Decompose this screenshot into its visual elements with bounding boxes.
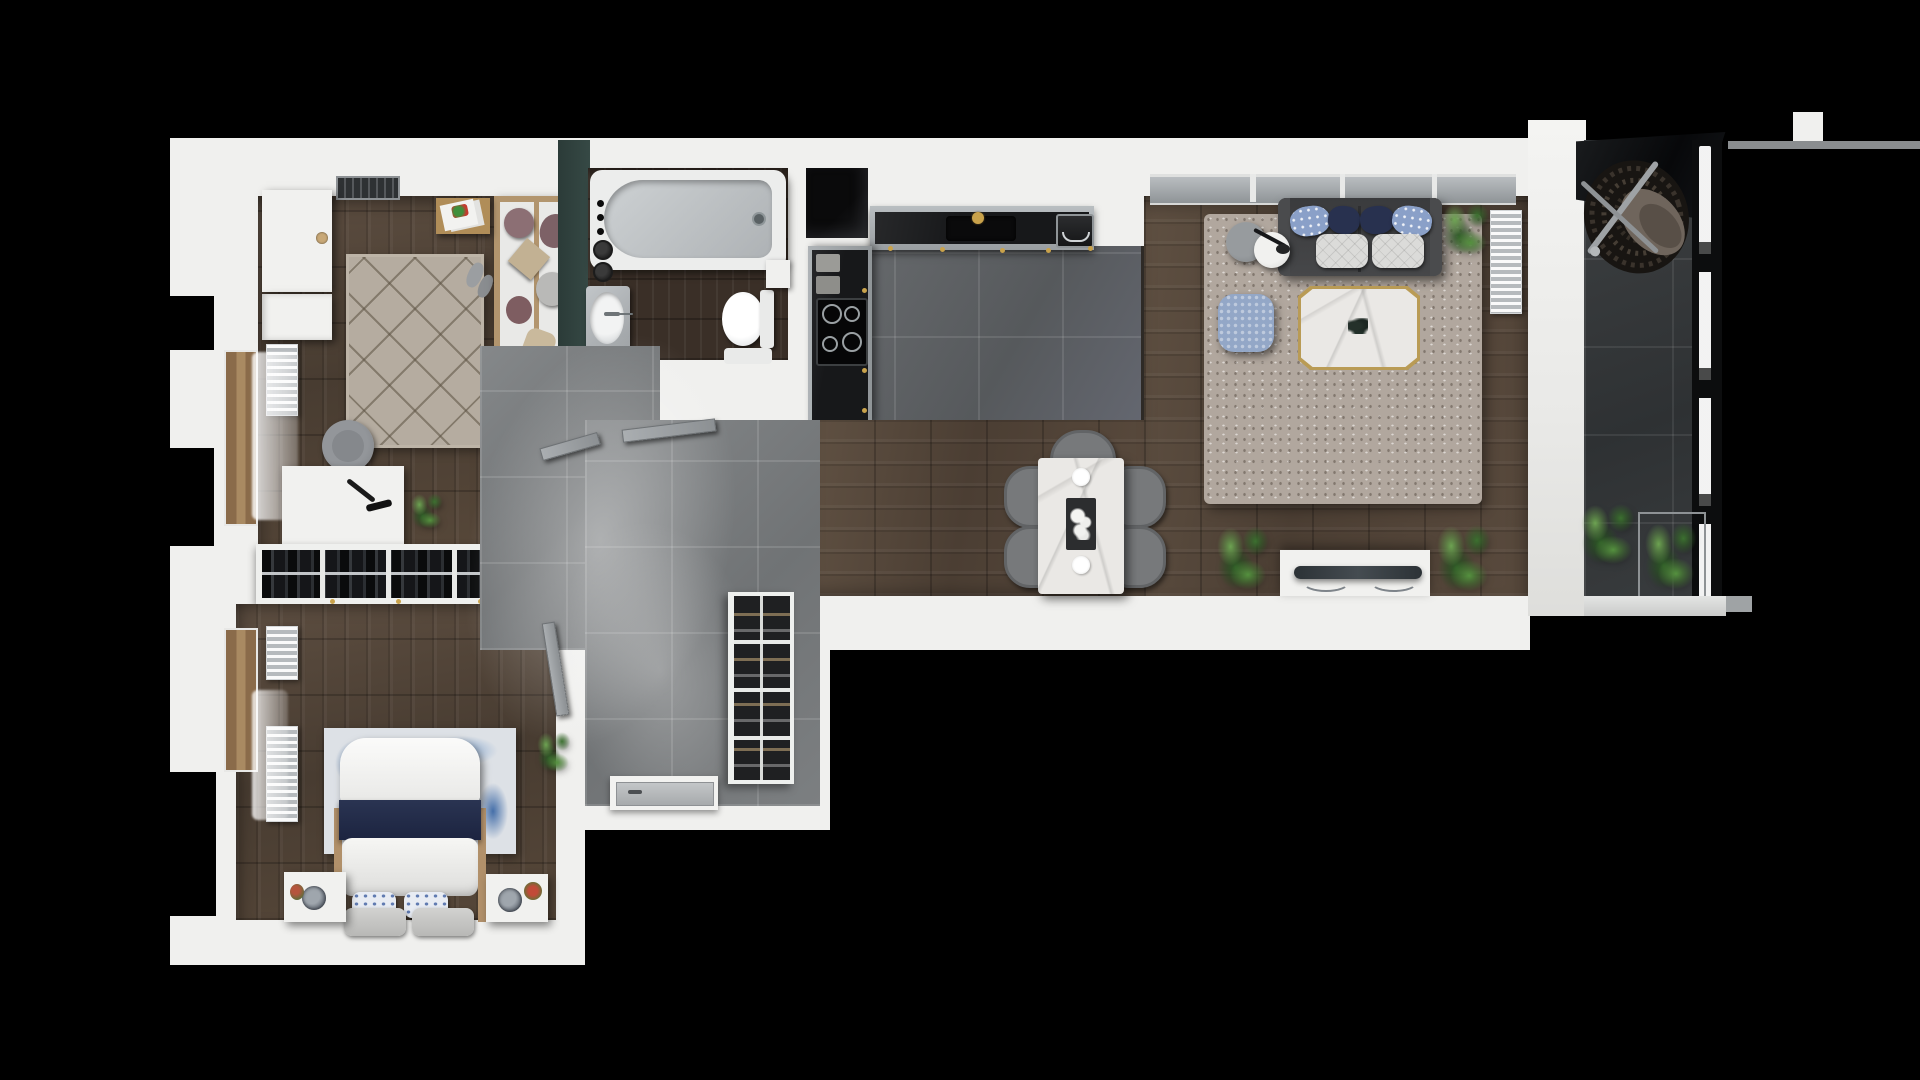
nightstand-right-flowers bbox=[524, 882, 542, 900]
cutting-board-1 bbox=[816, 254, 840, 272]
bed-navy-runner bbox=[339, 800, 481, 840]
balcony-sill-end-cap bbox=[1726, 596, 1752, 612]
side-counter-knob-3 bbox=[862, 408, 867, 413]
neighbor-balcony-edge-line bbox=[1728, 141, 1920, 149]
bedroom-curtain bbox=[252, 690, 288, 820]
office-low-cabinet bbox=[262, 294, 332, 340]
bathtub-basin bbox=[604, 180, 772, 258]
closet-divider-3 bbox=[452, 550, 457, 598]
side-counter-knob-1 bbox=[862, 288, 867, 293]
knitted-pouf bbox=[1218, 294, 1274, 352]
bathroom-sink-faucet bbox=[604, 312, 620, 316]
wall-balcony-right-stub bbox=[1793, 112, 1823, 142]
bed-pillow-gray-right bbox=[412, 908, 474, 936]
counter-knob-4 bbox=[1046, 248, 1051, 253]
daybed-cushion-mauve-3 bbox=[506, 296, 532, 324]
counter-knob-2 bbox=[940, 247, 945, 252]
service-shaft bbox=[806, 168, 868, 238]
hob-burner-1 bbox=[822, 304, 842, 324]
office-plant bbox=[408, 490, 446, 532]
ceiling-vent bbox=[336, 176, 400, 200]
shower-knob-small-1 bbox=[597, 200, 604, 207]
daybed-cushion-mauve-1 bbox=[504, 208, 534, 238]
bed-duvet-fold bbox=[342, 838, 478, 896]
toilet-bowl bbox=[722, 292, 764, 346]
tv-stand-leg-left bbox=[1302, 572, 1350, 592]
shower-mixer-knob-2 bbox=[593, 262, 613, 282]
bathroom-sink-basin bbox=[590, 292, 624, 344]
closet-divider-1 bbox=[320, 550, 325, 598]
hob-burner-2 bbox=[844, 306, 860, 322]
shower-knob-small-3 bbox=[597, 228, 604, 235]
toilet-cistern bbox=[760, 290, 774, 348]
shoe-rack-shelf-1 bbox=[734, 640, 790, 644]
facade-recess-bottom bbox=[170, 772, 216, 916]
shower-knob-small-2 bbox=[597, 214, 604, 221]
bedroom-plant bbox=[534, 728, 574, 776]
counter-knob-3 bbox=[1000, 248, 1005, 253]
kitchen-faucet bbox=[972, 212, 984, 224]
bathroom-tall-cabinet bbox=[766, 260, 790, 288]
nightstand-left-plant bbox=[290, 884, 304, 900]
bath-mat bbox=[724, 348, 772, 364]
shoe-rack-shelf-3 bbox=[734, 736, 790, 740]
counter-knob-5 bbox=[1088, 246, 1093, 251]
dining-chair-right-2 bbox=[1118, 526, 1166, 588]
coffee-table-leaf-decor bbox=[1348, 318, 1368, 334]
hob-burner-3 bbox=[822, 336, 838, 352]
sofa-cushion-quilted-right bbox=[1372, 234, 1424, 268]
bed-pillow-gray-left bbox=[344, 908, 406, 936]
plant-beside-dining bbox=[1212, 520, 1274, 596]
coffee-machine bbox=[1056, 214, 1094, 248]
bathtub-drain bbox=[752, 212, 766, 226]
dining-plate-top bbox=[1072, 468, 1090, 486]
front-door-leaf bbox=[616, 782, 714, 806]
hob-burner-4 bbox=[842, 332, 862, 352]
nightstand-left-lamp bbox=[302, 886, 326, 910]
balcony-plant-right bbox=[1640, 516, 1702, 596]
sofa-cushion-quilted-left bbox=[1316, 234, 1368, 268]
tv-stand-leg-right bbox=[1370, 572, 1418, 592]
floor-lamp-head bbox=[1276, 244, 1290, 254]
living-radiator bbox=[1490, 210, 1522, 314]
office-rug bbox=[346, 254, 484, 448]
dining-plate-bottom bbox=[1072, 556, 1090, 574]
counter-knob-1 bbox=[888, 246, 893, 251]
closet-divider-2 bbox=[386, 550, 391, 598]
plant-beside-console bbox=[1432, 518, 1496, 598]
office-chair-seat bbox=[332, 430, 364, 462]
dining-chair-right-1 bbox=[1118, 466, 1166, 528]
bedroom-radiator-upper bbox=[266, 626, 298, 680]
facade-recess-top bbox=[170, 296, 214, 350]
shower-mixer-knob-1 bbox=[593, 240, 613, 260]
office-wardrobe-knob bbox=[316, 232, 328, 244]
nightstand-right-lamp bbox=[498, 888, 522, 912]
front-door-handle bbox=[628, 790, 642, 794]
dining-flowers bbox=[1070, 508, 1092, 540]
side-counter-knob-2 bbox=[862, 368, 867, 373]
bed-duvet-foot bbox=[340, 738, 480, 804]
balcony-bottom-sill bbox=[1584, 596, 1726, 616]
balcony-plant-left bbox=[1576, 498, 1640, 570]
facade-recess-middle bbox=[170, 448, 214, 546]
cutting-board-2 bbox=[816, 276, 840, 294]
floor-plan-canvas bbox=[0, 0, 1920, 1080]
plant-beside-sofa bbox=[1438, 198, 1494, 260]
shoe-rack-shelf-2 bbox=[734, 688, 790, 692]
window-mullion-1 bbox=[1250, 174, 1256, 202]
